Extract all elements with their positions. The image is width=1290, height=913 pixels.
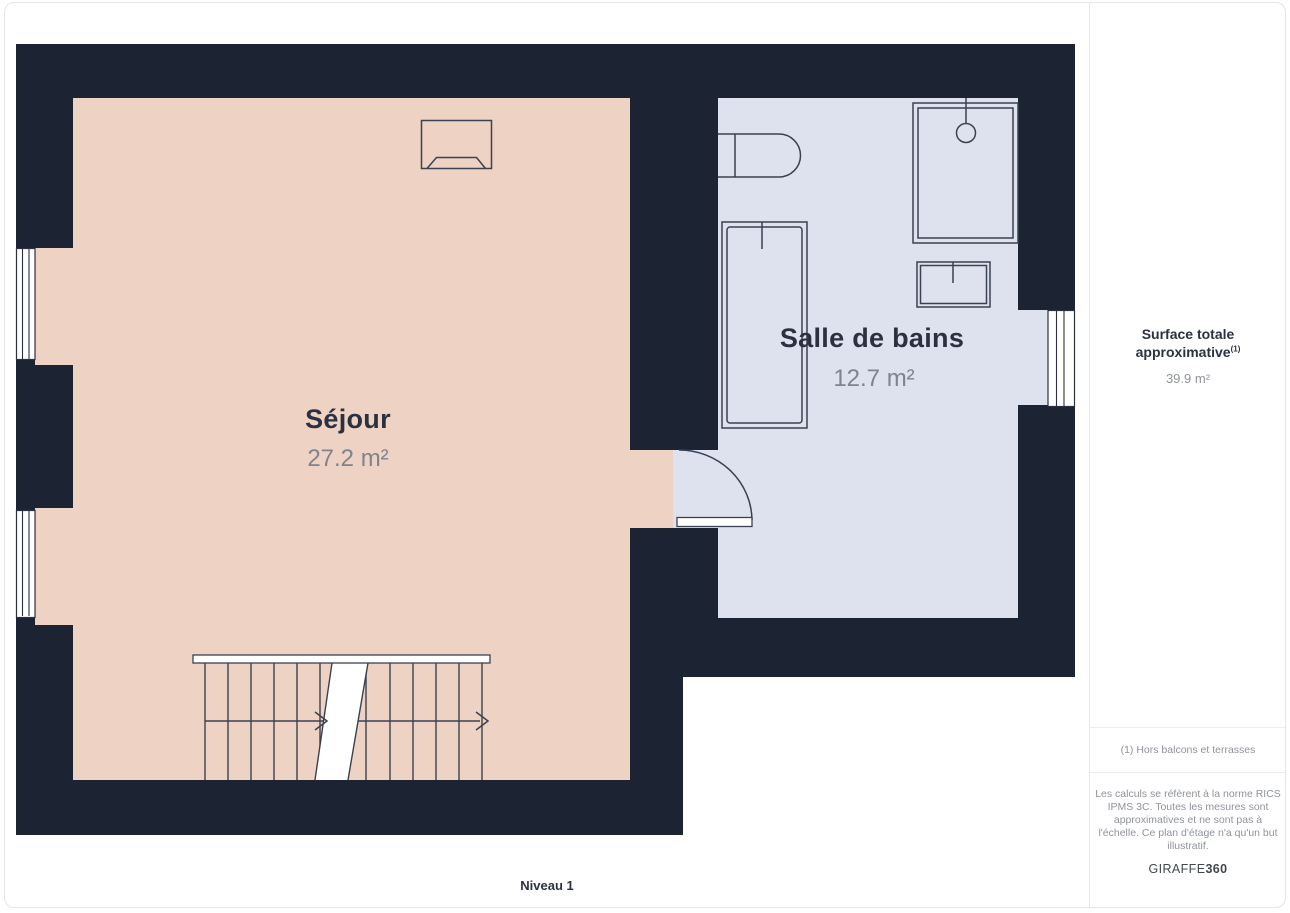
page-cutout	[683, 677, 1090, 853]
total-area-value: 39.9 m²	[1100, 371, 1276, 386]
footnote-text: (1) Hors balcons et terrasses	[1121, 744, 1256, 756]
door-opening-sejour-side	[630, 450, 673, 528]
window-right	[1018, 310, 1075, 407]
door-opening-bath-side	[673, 450, 718, 528]
giraffe360-logo: GIRAFFE360	[1090, 862, 1286, 876]
window-frame	[1048, 311, 1075, 407]
sidebar: Surface totale approximative(1) 39.9 m² …	[1089, 2, 1286, 908]
total-area-footnote-marker: (1)	[1231, 344, 1241, 353]
window-reveal	[35, 248, 73, 365]
window-left-1	[17, 248, 74, 365]
window-frame	[17, 511, 36, 618]
level-label: Niveau 1	[455, 878, 639, 893]
stairs-landing-edge	[193, 655, 490, 663]
footnote-section: (1) Hors balcons et terrasses	[1090, 727, 1286, 772]
window-reveal	[35, 508, 73, 625]
legal-section: Les calculs se réfèrent à la norme RICS …	[1090, 772, 1286, 908]
window-left-2	[17, 508, 74, 625]
room-salle-de-bains	[718, 98, 1018, 618]
brand-suffix: 360	[1205, 862, 1227, 876]
floor-plan: Séjour 27.2 m² Salle de bains 12.7 m² Ni…	[0, 0, 1090, 913]
room-label-sejour: Séjour	[305, 404, 391, 434]
brand-name: GIRAFFE	[1148, 862, 1205, 876]
door-leaf	[677, 518, 752, 527]
floor-plan-svg: Séjour 27.2 m² Salle de bains 12.7 m²	[0, 0, 1090, 913]
total-area-title: Surface totale approximative(1)	[1100, 326, 1276, 361]
sidebar-total-section: Surface totale approximative(1) 39.9 m²	[1090, 2, 1286, 727]
disclaimer-text: Les calculs se réfèrent à la norme RICS …	[1090, 788, 1286, 853]
window-frame	[17, 249, 36, 360]
room-area-salle-de-bains: 12.7 m²	[833, 365, 914, 392]
total-area-label: Surface totale approximative	[1136, 326, 1235, 360]
room-area-sejour: 27.2 m²	[307, 445, 388, 472]
window-reveal	[1018, 310, 1048, 405]
room-label-salle-de-bains: Salle de bains	[780, 323, 964, 353]
